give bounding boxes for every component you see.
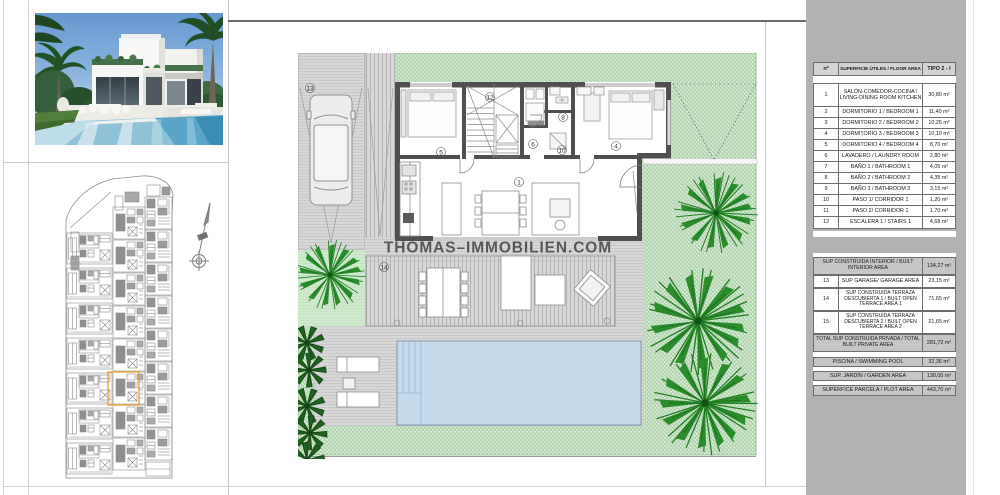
svg-text:6: 6 xyxy=(531,142,535,149)
svg-text:10: 10 xyxy=(558,148,566,155)
svg-text:14: 14 xyxy=(380,265,388,272)
svg-text:13: 13 xyxy=(306,86,314,93)
svg-text:THOMAS–IMMOBILIEN.COM: THOMAS–IMMOBILIEN.COM xyxy=(384,240,612,257)
svg-text:8: 8 xyxy=(561,115,565,122)
svg-text:12: 12 xyxy=(486,95,494,102)
svg-text:5: 5 xyxy=(439,150,443,157)
svg-text:1: 1 xyxy=(517,180,521,187)
svg-text:4: 4 xyxy=(614,144,618,151)
